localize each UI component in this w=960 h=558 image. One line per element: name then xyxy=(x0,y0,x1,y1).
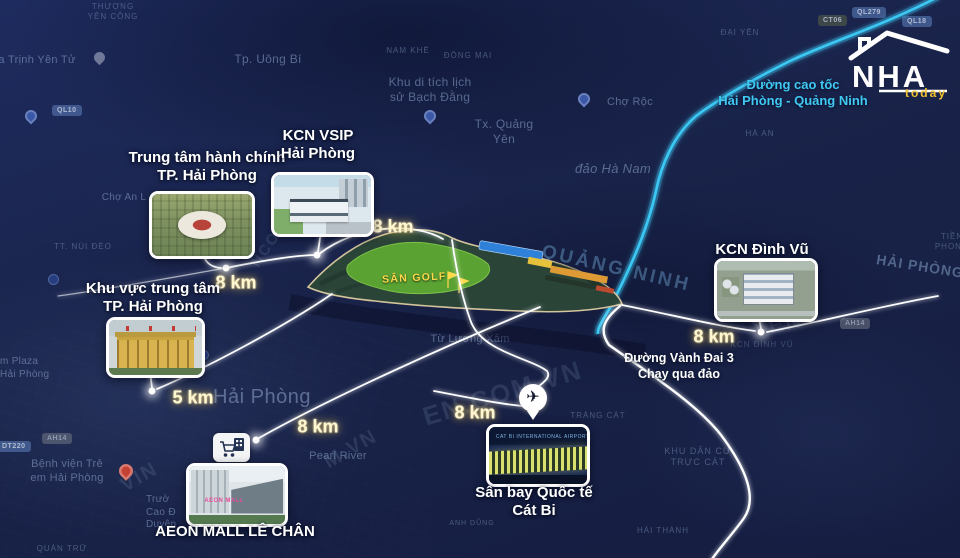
route-endpoint xyxy=(758,329,765,336)
landmark-label-dinhvu: KCN Đình Vũ xyxy=(715,241,808,259)
aeon-photo-art: AEON MALL xyxy=(189,466,285,524)
logo-subtext: today xyxy=(905,86,947,100)
vsip-road xyxy=(326,222,371,234)
airport-terminal-sign: CAT BI INTERNATIONAL AIRPORT xyxy=(496,434,590,440)
distance-label-center: 5 km xyxy=(172,388,213,409)
landmark-label-vsip: KCN VSIP Hải Phòng xyxy=(281,127,355,162)
route-endpoint xyxy=(314,252,321,259)
airport-terminal xyxy=(489,446,587,474)
airport-photo-art: CAT BI INTERNATIONAL AIRPORT xyxy=(489,427,587,484)
airport-pin: ✈ xyxy=(519,384,547,412)
shopping-mall-marker xyxy=(213,433,250,462)
airplane-icon: ✈ xyxy=(526,390,539,406)
shopping-cart-icon xyxy=(219,437,245,459)
aeon-east-wing xyxy=(231,479,283,514)
route-endpoint xyxy=(223,265,230,272)
landmark-label-admin: Trung tâm hành chính TP. Hải Phòng xyxy=(129,149,286,184)
landmark-label-aeon: AEON MALL LÊ CHÂN xyxy=(155,523,315,541)
dinhvu-road xyxy=(717,311,815,316)
distance-label-dinhvu: 8 km xyxy=(693,327,734,348)
landmark-photo-airport: CAT BI INTERNATIONAL AIRPORT xyxy=(486,424,590,487)
landmark-photo-dinhvu xyxy=(714,258,818,322)
distance-label-aeon: 8 km xyxy=(297,417,338,438)
admin-photo-art xyxy=(152,194,252,256)
dinhvu-photo-art xyxy=(717,261,815,319)
opera-flags xyxy=(115,326,197,332)
vsip-photo-art xyxy=(274,175,371,234)
dinhvu-tanks xyxy=(722,277,739,297)
opera-building xyxy=(117,337,193,370)
landmark-label-center: Khu vực trung tâm TP. Hải Phòng xyxy=(86,280,220,315)
landmark-photo-center xyxy=(106,317,205,378)
landmark-photo-admin xyxy=(149,191,255,259)
distance-label-admin: 8 km xyxy=(215,273,256,294)
route-endpoint xyxy=(253,437,260,444)
airport-apron xyxy=(489,475,587,484)
vsip-factory xyxy=(290,199,348,222)
brand-logo: NHA today xyxy=(845,24,953,102)
landmark-label-airport: Sân bay Quốc tế Cát Bi xyxy=(475,484,593,519)
distance-label-airport: 8 km xyxy=(454,403,495,424)
dinhvu-warehouses xyxy=(743,273,794,305)
location-map: THƯỢNG YÊN CÔNG ua Trịnh Yên Tử Tp. Uông… xyxy=(0,0,960,558)
opera-garden xyxy=(109,368,202,375)
stadium-shape xyxy=(178,211,226,240)
distance-label-vsip: 8 km xyxy=(372,217,413,238)
development-island xyxy=(308,230,622,312)
aeon-sign: AEON MALL xyxy=(204,498,243,504)
aeon-west-wing xyxy=(191,470,229,513)
landmark-photo-vsip xyxy=(271,172,374,237)
opera-photo-art xyxy=(109,320,202,375)
ringroad-annotation: Đường Vành Đai 3 Chạy qua đảo xyxy=(624,351,734,382)
route-endpoint xyxy=(149,388,156,395)
landmark-photo-aeon: AEON MALL xyxy=(186,463,288,527)
